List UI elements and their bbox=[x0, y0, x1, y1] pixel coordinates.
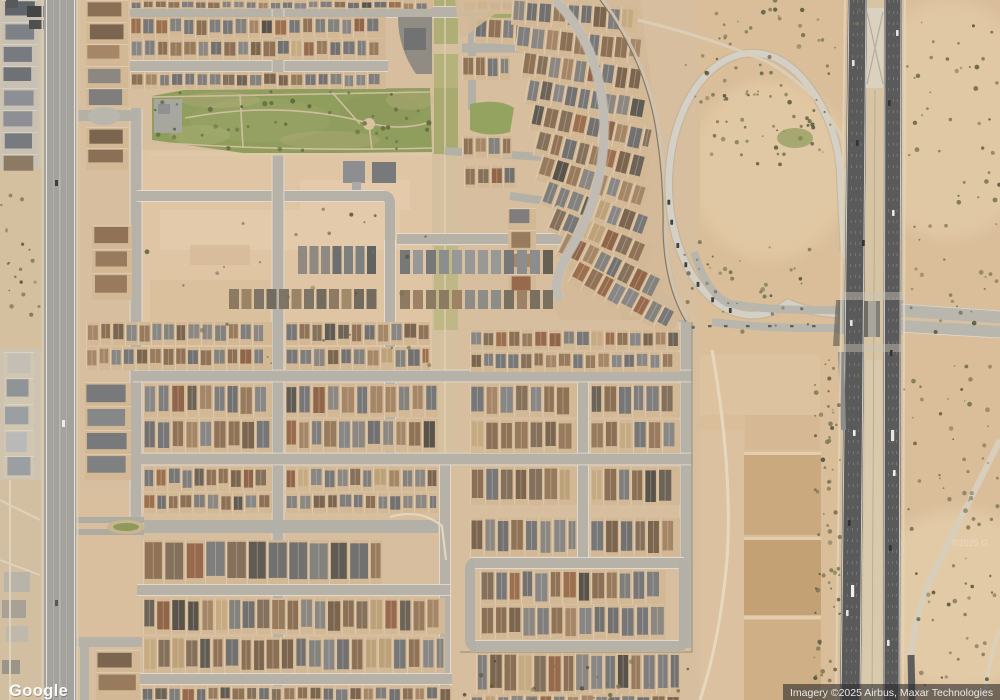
svg-text:Imagery ©2025 Airbus, Maxar Te: Imagery ©2025 Airbus, Maxar Technologies bbox=[790, 687, 993, 699]
svg-text:©2025 G: ©2025 G bbox=[952, 538, 988, 548]
svg-text:Google: Google bbox=[9, 682, 68, 700]
